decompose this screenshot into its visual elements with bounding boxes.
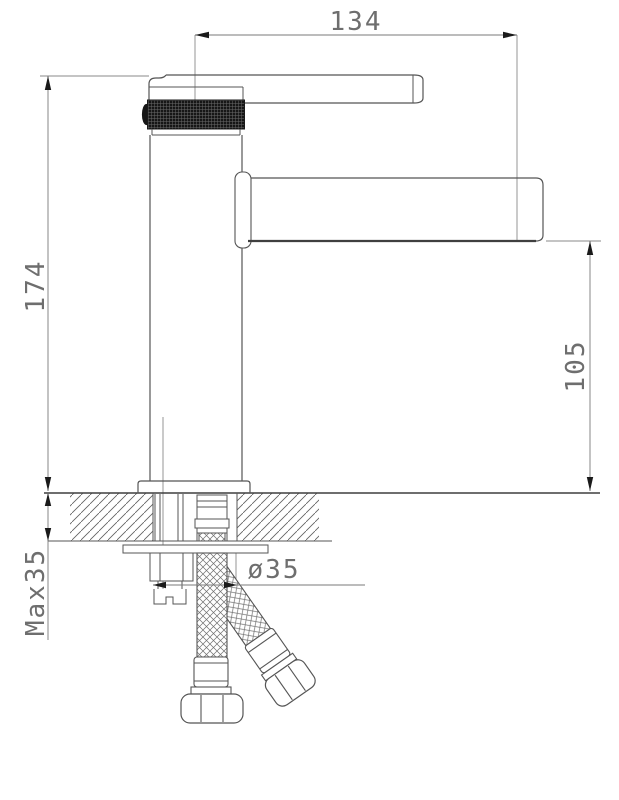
dim-label-hole-diameter: ø35 bbox=[248, 555, 301, 585]
cartridge-cap bbox=[149, 75, 243, 101]
body-column bbox=[150, 135, 242, 481]
arrowhead-down bbox=[587, 477, 593, 491]
arrowhead-left bbox=[195, 32, 209, 38]
handle-lever bbox=[166, 75, 423, 103]
arrowhead-down bbox=[45, 528, 51, 541]
washer-plate bbox=[123, 545, 268, 553]
counter-hatch-left bbox=[70, 494, 153, 541]
knurled-ring bbox=[143, 100, 245, 135]
faucet-technical-drawing: 134 174 105 Max35 ø35 bbox=[0, 0, 619, 800]
stud-slotted-tail bbox=[154, 589, 186, 604]
technical-drawing-page: 134 174 105 Max35 ø35 bbox=[0, 0, 619, 800]
arrowhead-up bbox=[45, 493, 51, 506]
fixing-nut bbox=[150, 553, 193, 581]
arrowhead-up bbox=[45, 76, 51, 90]
dim-label-spout-reach: 134 bbox=[330, 7, 383, 37]
vertical-hose-collar bbox=[191, 687, 231, 694]
counter-deck bbox=[44, 493, 600, 541]
arrowhead-down bbox=[45, 477, 51, 491]
arrowhead-right bbox=[503, 32, 517, 38]
dim-label-overall-height: 174 bbox=[21, 260, 51, 313]
vertical-hose-ferrule bbox=[194, 657, 228, 687]
spout-joint-tab bbox=[235, 172, 251, 248]
vertical-hose-braid bbox=[197, 553, 227, 657]
dim-label-deck-thickness: Max35 bbox=[21, 548, 51, 636]
escutcheon-base bbox=[138, 481, 250, 493]
hose-connector bbox=[195, 495, 229, 541]
vertical-hose-nut bbox=[181, 694, 243, 723]
dim-label-outlet-height: 105 bbox=[561, 340, 591, 393]
arrowhead-up bbox=[587, 241, 593, 255]
spout bbox=[235, 172, 543, 248]
faucet-body bbox=[138, 75, 543, 493]
counter-hatch-right bbox=[237, 494, 319, 541]
arrowhead-left bbox=[153, 582, 166, 588]
